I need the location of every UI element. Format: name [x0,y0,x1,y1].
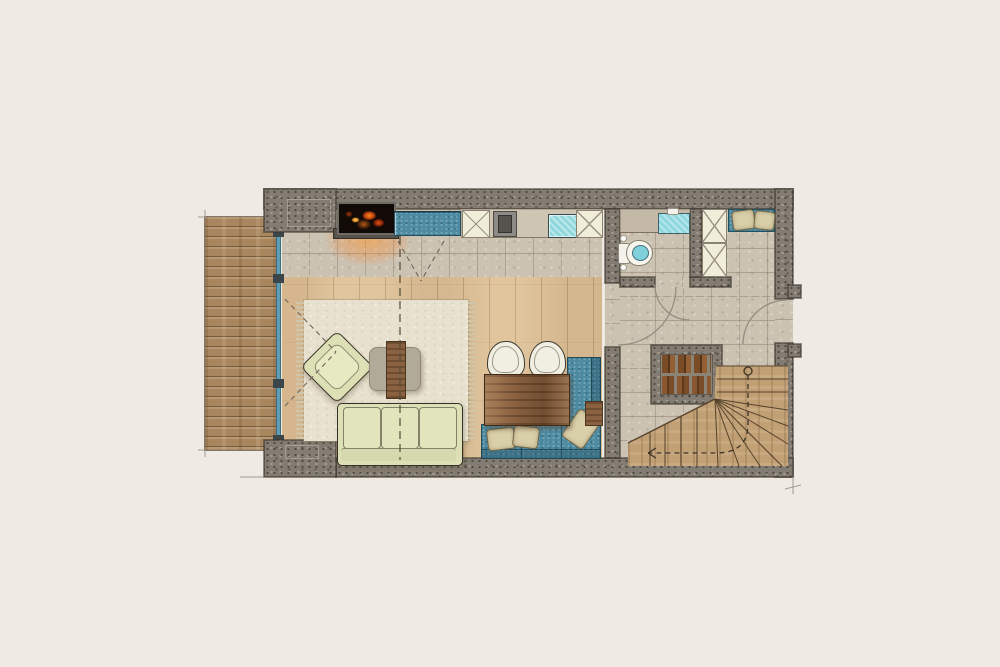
floor-plan-canvas [0,0,1000,667]
wall-top-left-block [264,189,336,232]
wall-bathroom-bottom-right [690,277,731,287]
wall-niche-outline [288,200,330,226]
sofa [337,403,463,466]
wall-niche-outline [286,446,318,458]
sofa-cushion [419,407,457,449]
glass-mullion [273,274,284,283]
wall-bathroom-bottom-left [620,277,655,287]
wall-pilaster [788,285,801,298]
bathroom-washbasin [658,213,690,234]
kitchen-tall-cabinet [576,210,603,238]
toilet-seat [632,245,649,261]
glass-mullion [273,232,284,237]
wall-bathroom-right [690,209,702,277]
armchair-cushion [312,342,363,393]
dining-table [484,374,570,426]
glass-mullion [273,379,284,388]
wall-bottom-left-block [264,440,336,477]
bench-cushion [753,210,776,231]
hall-closet-upper [702,209,727,243]
chair-seat-line [534,346,560,373]
rug-fringe-right [468,302,476,439]
firewood-stack-row [662,376,711,394]
kitchen-tall-cabinet [462,210,490,238]
glass-wall [276,232,281,440]
wall-pilaster [788,344,801,357]
fireplace-firebox [337,202,396,235]
firewood-stack-row [662,355,711,373]
door-opening-entry [775,299,793,343]
appliance-door [498,215,512,233]
sofa-cushion [381,407,419,449]
door-opening-bathroom [655,277,690,287]
chair-seat-line [492,346,519,373]
toilet-flush-button [620,235,627,242]
sofa-cushion [343,407,381,449]
coffee-table-runner [386,341,406,399]
bench-side-table [585,401,603,426]
bench-pillow [512,424,540,449]
bench-seat-divider [561,424,562,459]
wall-divider-lower [605,347,620,458]
kitchen-counter-blue [394,211,461,236]
rug-fringe-left [296,302,304,439]
door-opening-living-hall [605,283,620,347]
kitchen-appliance-oven [493,211,517,237]
hall-closet-lower [702,243,727,277]
wall-right-upper [775,189,793,299]
washbasin-tap [667,208,679,215]
sofa-front-edge [341,448,456,461]
terrace-deck [205,217,276,450]
bench-cushion [731,209,756,232]
kitchen-sink [548,214,578,238]
toilet-flush-button [620,264,627,271]
bench-back-edge [481,449,601,459]
